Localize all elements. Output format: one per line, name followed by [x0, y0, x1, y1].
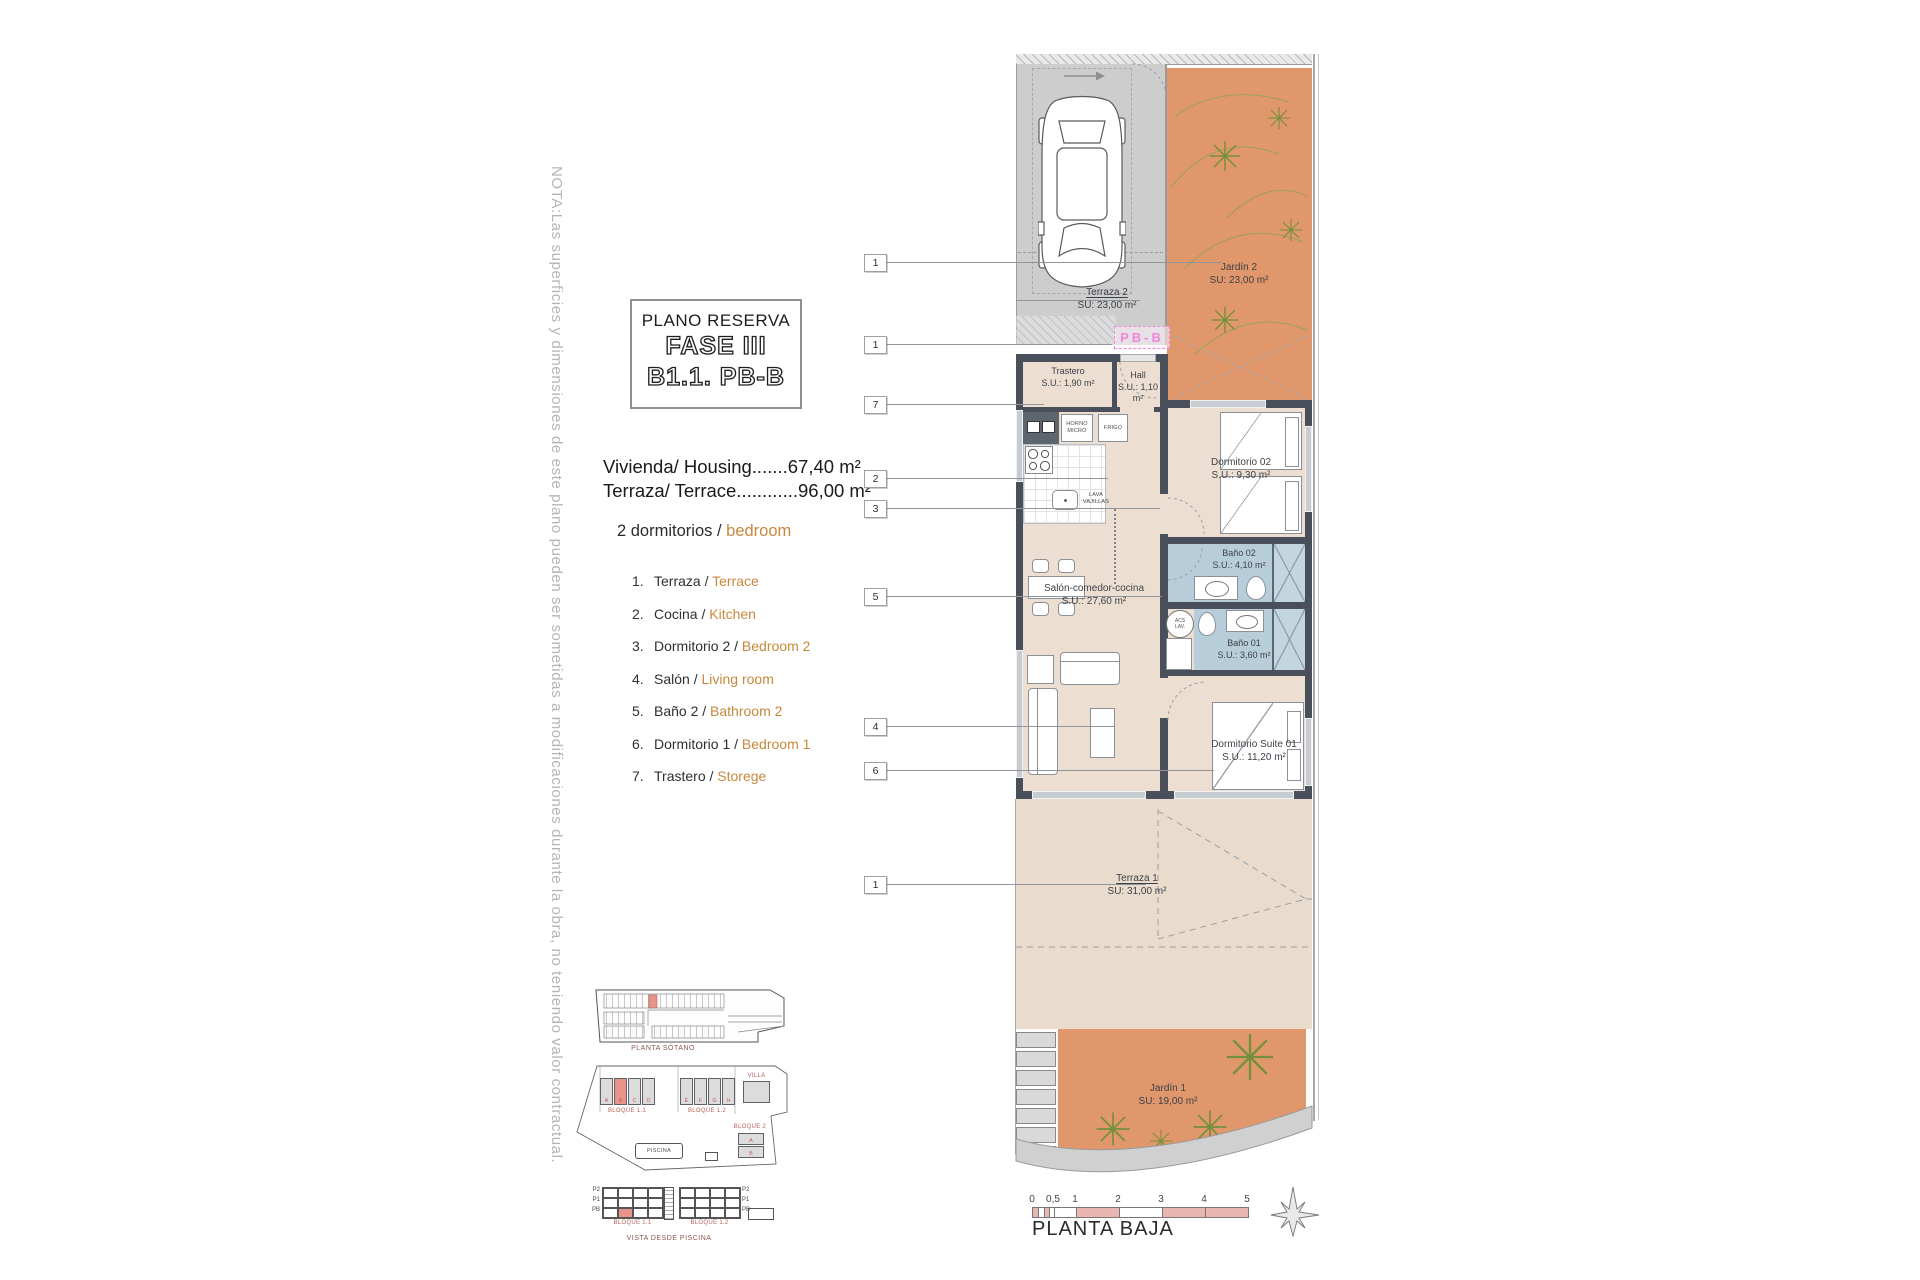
scale-tick-label: 5	[1244, 1194, 1250, 1205]
legend-en: Bedroom 2	[742, 638, 810, 654]
room-label-dormitorio2: Dormitorio 02 S.U.: 9,30 m²	[1174, 456, 1308, 482]
room-label-terraza1: Terraza 1 SU: 31,00 m²	[1087, 872, 1187, 898]
unit-letter: H	[727, 1098, 731, 1104]
elevation-villa-block	[748, 1208, 774, 1220]
legend-es: Cocina /	[654, 606, 705, 622]
bedrooms-en: bedroom	[726, 522, 791, 540]
elevation-cell	[603, 1198, 618, 1208]
sheet-title: PLANTA BAJA	[1032, 1218, 1174, 1241]
wall-bano2-bano1	[1168, 602, 1312, 609]
scale-bar-track	[1032, 1207, 1249, 1218]
terraza2-label-underline	[1016, 300, 1140, 301]
elevation-cell	[695, 1198, 710, 1208]
room-label-jardin2: Jardín 2 SU: 23,00 m²	[1174, 261, 1304, 287]
callout-number: 1	[873, 257, 879, 269]
room-name: Trastero	[1028, 366, 1108, 378]
sink-basin	[1205, 581, 1229, 597]
cabinet-sink-right	[1042, 421, 1055, 433]
scale-segment	[1119, 1208, 1162, 1217]
boundary-line-right	[1313, 54, 1315, 1134]
pantry-dotted-divider	[1114, 509, 1116, 584]
bloque11-caption: BLOQUE 1.1	[598, 1108, 656, 1114]
unit-letter: D	[647, 1098, 651, 1104]
site-piscina: PISCINA	[635, 1143, 683, 1159]
appliance-label: FRIGO	[1104, 425, 1122, 432]
jardin2-plants	[1167, 68, 1312, 400]
elevation-bloque11-caption: BLOQUE 1.1	[602, 1220, 663, 1226]
callout-3-dormitorio2: 3	[864, 500, 887, 518]
room-name: Dormitorio 02	[1174, 456, 1308, 469]
bed-fold-line	[1221, 477, 1261, 533]
callout-number: 7	[873, 399, 879, 411]
legend-item: 3.Dormitorio 2 / Bedroom 2	[632, 638, 810, 654]
elevation-cell	[710, 1208, 725, 1218]
legend-num: 3.	[632, 638, 654, 654]
elevation-cell	[618, 1198, 633, 1208]
room-name: Baño 02	[1184, 548, 1294, 560]
planter-box	[1016, 1032, 1056, 1048]
acs-label: ACS LAV.	[1172, 618, 1188, 631]
bloque2-unit-b: B	[738, 1146, 764, 1158]
floor-label-p2-left: P2	[588, 1187, 600, 1193]
acs-heater: ACS LAV.	[1166, 610, 1194, 638]
north-star-icon	[1266, 1186, 1320, 1244]
legend-item: 2.Cocina / Kitchen	[632, 606, 810, 622]
scale-bar: 0 0,5 1 2 3 4 5	[1032, 1194, 1248, 1218]
room-area: SU: 19,00 m²	[1108, 1095, 1228, 1108]
elevation-cell	[633, 1198, 648, 1208]
bano2-toilet	[1246, 576, 1266, 600]
area-summary: Vivienda/ Housing.......67,40 m² Terraza…	[603, 455, 871, 502]
appliance-horno-micro: HORNO MICRO	[1061, 414, 1093, 442]
dining-chair	[1058, 559, 1075, 573]
site-unit-h: H	[722, 1078, 735, 1105]
elevation-cell	[680, 1188, 695, 1198]
floor-label-p1-left: P1	[588, 1197, 600, 1203]
unit-letter: F	[699, 1098, 702, 1104]
room-name: Salón-comedor-cocina	[1024, 582, 1164, 595]
entrance-door-opening	[1120, 354, 1156, 362]
appliance-label: LAVA VAJILLAS	[1081, 492, 1111, 506]
room-label-bano1: Baño 01 S.U.: 3,60 m²	[1192, 638, 1296, 661]
site-small-structure	[705, 1152, 718, 1161]
terraza1-dashed-lines	[1016, 799, 1312, 1029]
room-name: Dormitorio Suite 01	[1184, 738, 1324, 751]
room-area: S.U.: 27,60 m²	[1024, 595, 1164, 608]
callout-number: 2	[873, 473, 879, 485]
elevation-cell	[680, 1198, 695, 1208]
legend-en: Bathroom 2	[710, 703, 782, 719]
legend-en: Living room	[701, 671, 773, 687]
vista-caption: VISTA DESDE PISCINA	[589, 1235, 749, 1242]
room-area: SU: 31,00 m²	[1087, 885, 1187, 898]
room-name: Hall	[1116, 370, 1160, 382]
elevation-cell	[648, 1188, 663, 1198]
door-opening-suite	[1160, 678, 1168, 718]
entry-arrow-icon	[1062, 70, 1106, 82]
bed-pillow	[1285, 481, 1299, 531]
bano1-toilet	[1198, 612, 1216, 636]
legend-num: 5.	[632, 703, 654, 719]
leader-line	[886, 478, 1108, 479]
bano1-sink-counter	[1226, 610, 1264, 632]
scale-tick-label: 2	[1115, 1194, 1121, 1205]
site-unit-g: G	[708, 1078, 721, 1105]
callout-6-dormitorio1: 6	[864, 762, 887, 780]
unit-letter: E	[685, 1098, 689, 1104]
floor-label-pb-right: PB	[742, 1207, 750, 1213]
legend-es: Dormitorio 2 /	[654, 638, 738, 654]
sink-basin	[1236, 615, 1258, 629]
sofa-back-line	[1037, 689, 1038, 774]
legend-en: Storege	[717, 768, 766, 784]
basement-plan-caption: PLANTA SÓTANO	[588, 1045, 738, 1052]
room-area: SU: 23,00 m²	[1174, 274, 1304, 287]
legend-item: 7.Trastero / Storege	[632, 768, 810, 784]
disclaimer-note: NOTA:Las superficies y dimensiones de es…	[548, 166, 565, 1096]
elevation-grid-bloque12	[679, 1187, 741, 1219]
site-unit-e: E	[680, 1078, 693, 1105]
room-label-hall: Hall S.U.: 1,10 m²	[1116, 370, 1160, 405]
phase-label: FASE III	[632, 331, 800, 362]
scale-tick-label: 3	[1158, 1194, 1164, 1205]
elevation-cell-highlighted	[618, 1208, 633, 1218]
elevation-cell	[710, 1188, 725, 1198]
floor-label-p1-right: P1	[742, 1197, 749, 1203]
dining-chair	[1032, 559, 1049, 573]
elevation-cell	[725, 1188, 740, 1198]
callout-4-salon: 4	[864, 718, 887, 736]
scale-segment	[1205, 1208, 1248, 1217]
bedrooms-line: 2 dormitorios / bedroom	[617, 522, 791, 541]
callout-7-trastero: 7	[864, 396, 887, 414]
callout-number: 4	[873, 721, 879, 733]
site-unit-f: F	[694, 1078, 707, 1105]
appliance-lavavajillas: LAVA VAJILLAS	[1078, 488, 1114, 510]
scale-tick-label: 1	[1072, 1194, 1078, 1205]
scale-segment	[1162, 1208, 1205, 1217]
scale-segment	[1076, 1208, 1119, 1217]
elevation-cell	[695, 1188, 710, 1198]
legend-es: Salón /	[654, 671, 698, 687]
window-dormitorio2-top	[1190, 400, 1266, 408]
callout-number: 5	[873, 591, 879, 603]
room-label-trastero: Trastero S.U.: 1,90 m²	[1028, 366, 1108, 389]
leader-line	[886, 262, 1222, 263]
sliding-door-salon	[1032, 791, 1146, 799]
window-salon-left	[1016, 650, 1023, 778]
floor-label-pb-left: PB	[588, 1207, 600, 1213]
side-table	[1027, 655, 1054, 684]
plan-type-label: PLANO RESERVA	[632, 311, 800, 331]
boundary-line-right-outer	[1318, 54, 1319, 1129]
wall-dorm2-bano2	[1168, 537, 1312, 544]
door-opening-dormitorio2	[1160, 494, 1168, 534]
acs-closet	[1166, 638, 1192, 670]
room-area: S.U.: 4,10 m²	[1184, 560, 1294, 572]
unit-letter: B	[619, 1098, 623, 1104]
room-area: S.U.: 9,30 m²	[1174, 469, 1308, 482]
legend-en: Kitchen	[709, 606, 756, 622]
room-name: Baño 01	[1192, 638, 1296, 650]
room-name: Jardín 1	[1108, 1082, 1228, 1095]
sofa-vertical	[1028, 688, 1058, 775]
sink-drain	[1064, 499, 1067, 502]
unit-letter: A	[605, 1098, 609, 1104]
callout-1-terraza1: 1	[864, 876, 887, 894]
elevation-cell	[648, 1208, 663, 1218]
elevation-cell	[618, 1188, 633, 1198]
kitchen-cabinet-dark	[1023, 412, 1059, 444]
planter-box	[1016, 1051, 1056, 1067]
callout-2-cocina: 2	[864, 470, 887, 488]
callout-number: 3	[873, 503, 879, 515]
leader-line	[886, 344, 1112, 345]
room-name: Terraza 2	[1052, 286, 1162, 299]
elevation-cell	[680, 1208, 695, 1218]
room-area: S.U.: 11,20 m²	[1184, 751, 1324, 764]
ramp-hatch	[1016, 316, 1116, 345]
bed-dormitorio2-2	[1220, 476, 1302, 534]
elevation-cell	[648, 1198, 663, 1208]
terrace-area-line: Terraza/ Terrace............96,00 m²	[603, 479, 871, 503]
room-label-suite: Dormitorio Suite 01 S.U.: 11,20 m²	[1184, 738, 1324, 764]
legend-en: Terrace	[712, 573, 759, 589]
hob-icon	[1025, 446, 1053, 474]
unit-letter: B	[749, 1151, 753, 1157]
room-name: Terraza 1	[1087, 872, 1187, 885]
kitchen-sink	[1052, 490, 1078, 510]
wall-center	[1160, 354, 1168, 799]
elevation-cell	[725, 1198, 740, 1208]
wall-bano1-suite	[1168, 670, 1312, 676]
elevation-cell	[710, 1198, 725, 1208]
room-area: S.U.: 1,10 m²	[1116, 382, 1160, 405]
title-block: PLANO RESERVA FASE III B1.1. PB-B	[630, 299, 802, 409]
legend-num: 4.	[632, 671, 654, 687]
site-unit-b-highlighted: B	[614, 1078, 627, 1105]
sofa-horizontal	[1060, 652, 1120, 685]
unit-letter: G	[712, 1098, 716, 1104]
room-label-jardin1: Jardín 1 SU: 19,00 m²	[1108, 1082, 1228, 1108]
sliding-door-suite	[1174, 791, 1294, 799]
appliance-label: HORNO MICRO	[1064, 421, 1090, 435]
leader-line	[886, 726, 1114, 727]
scale-tick-label: 4	[1201, 1194, 1207, 1205]
room-area: S.U.: 1,90 m²	[1028, 378, 1108, 390]
unit-tag-text: PB-B	[1120, 330, 1164, 345]
leader-line	[886, 770, 1214, 771]
unit-letter: C	[633, 1098, 637, 1104]
legend-num: 6.	[632, 736, 654, 752]
floor-plan: Terraza 2 SU: 23,00 m² PB-B Jardín 2 SU:…	[1014, 54, 1320, 1194]
unit-code-label: B1.1. PB-B	[632, 362, 800, 393]
legend-item: 5.Baño 2 / Bathroom 2	[632, 703, 810, 719]
sofa-back-line	[1061, 661, 1119, 662]
scale-tick-label: 0,5	[1046, 1194, 1060, 1205]
unit-tag-pbb: PB-B	[1114, 326, 1170, 349]
elevation-cell	[633, 1208, 648, 1218]
elevation-cell	[603, 1188, 618, 1198]
room-label-salon: Salón-comedor-cocina S.U.: 27,60 m²	[1024, 582, 1164, 608]
cabinet-sink-left	[1027, 421, 1040, 433]
floor-label-p2-right: P2	[742, 1187, 749, 1193]
site-unit-d: D	[642, 1078, 655, 1105]
window-kitchen-left	[1016, 410, 1023, 482]
callout-number: 1	[873, 339, 879, 351]
bloque2-caption: BLOQUE 2	[732, 1124, 768, 1130]
housing-area-line: Vivienda/ Housing.......67,40 m²	[603, 455, 871, 479]
room-label-terraza2: Terraza 2 SU: 23,00 m²	[1052, 286, 1162, 312]
site-unit-c: C	[628, 1078, 641, 1105]
legend-es: Dormitorio 1 /	[654, 736, 738, 752]
appliance-frigo: FRIGO	[1098, 414, 1128, 442]
leader-line	[886, 404, 1044, 405]
unit-letter: A	[749, 1138, 753, 1144]
room-legend: 1.Terraza / Terrace 2.Cocina / Kitchen 3…	[632, 573, 810, 801]
elevation-grid-bloque11	[602, 1187, 664, 1219]
room-label-bano2: Baño 02 S.U.: 4,10 m²	[1184, 548, 1294, 571]
legend-es: Baño 2 /	[654, 703, 706, 719]
legend-num: 2.	[632, 606, 654, 622]
architectural-sheet: { "note": "NOTA:Las superficies y dimens…	[0, 0, 1920, 1280]
bloque12-caption: BLOQUE 1.2	[678, 1108, 736, 1114]
room-area: S.U.: 3,60 m²	[1192, 650, 1296, 662]
basement-key-plan	[588, 986, 793, 1048]
leader-line	[886, 508, 1160, 509]
piscina-label: PISCINA	[647, 1148, 671, 1154]
elevation-stair-core	[664, 1187, 674, 1220]
callout-number: 1	[873, 879, 879, 891]
bano2-sink-counter	[1194, 576, 1238, 600]
legend-item: 4.Salón / Living room	[632, 671, 810, 687]
legend-item: 1.Terraza / Terrace	[632, 573, 810, 589]
elevation-cell	[725, 1208, 740, 1218]
legend-es: Terraza /	[654, 573, 708, 589]
elevation-cell	[633, 1188, 648, 1198]
callout-1-entry: 1	[864, 336, 887, 354]
callout-1-terraza2: 1	[864, 254, 887, 272]
callout-number: 6	[873, 765, 879, 777]
bedrooms-es: 2 dormitorios /	[617, 522, 722, 540]
coffee-table	[1090, 708, 1115, 758]
legend-num: 1.	[632, 573, 654, 589]
bloque2-unit-a: A	[738, 1133, 764, 1145]
elevation-bloque12-caption: BLOQUE 1.2	[679, 1220, 740, 1226]
legend-en: Bedroom 1	[742, 736, 810, 752]
site-villa	[743, 1081, 770, 1103]
legend-item: 6.Dormitorio 1 / Bedroom 1	[632, 736, 810, 752]
site-unit-a: A	[600, 1078, 613, 1105]
scale-segment	[1054, 1208, 1076, 1217]
legend-num: 7.	[632, 768, 654, 784]
elevation-cell	[603, 1208, 618, 1218]
legend-es: Trastero /	[654, 768, 713, 784]
elevation-cell	[695, 1208, 710, 1218]
scale-tick-label: 0	[1029, 1194, 1035, 1205]
villa-caption: VILLA	[743, 1073, 770, 1079]
callout-5-bano2: 5	[864, 588, 887, 606]
